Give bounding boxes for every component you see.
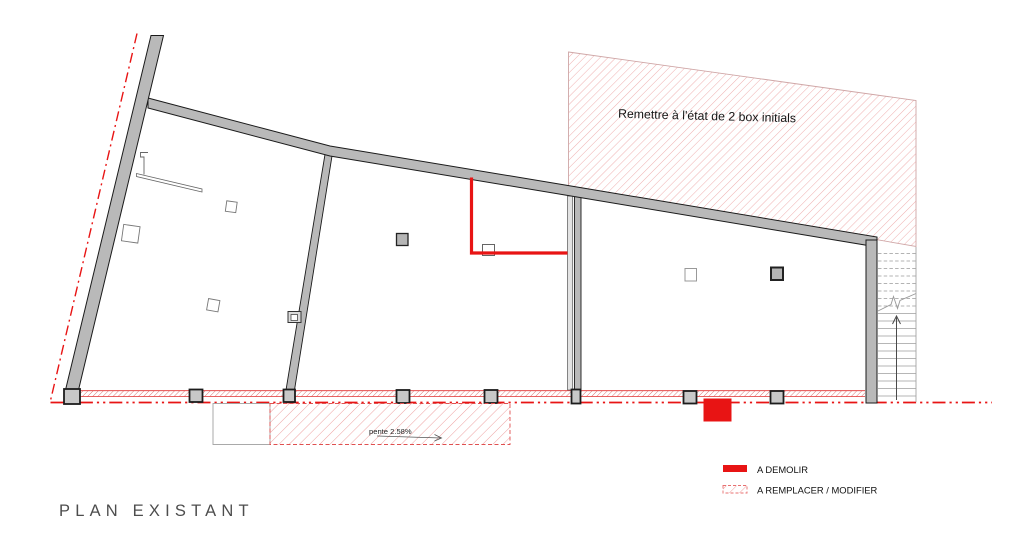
legend-label-demolir: A DEMOLIR — [757, 464, 808, 475]
staircase — [878, 247, 916, 402]
room1-details — [121, 153, 237, 312]
column — [485, 390, 498, 403]
legend-swatch-remplacer — [723, 486, 747, 494]
room2-details — [288, 234, 495, 323]
room3-details — [685, 268, 783, 282]
thin-wall-outline — [137, 174, 203, 193]
column — [284, 390, 296, 403]
room-fixture-square — [771, 268, 783, 281]
right-wall — [866, 240, 877, 403]
legend-item-demolir: A DEMOLIR — [723, 464, 808, 475]
boundary-diagonal-phantom-line — [51, 34, 138, 403]
partition-wall-2 — [575, 196, 582, 390]
legend-swatch-demolir — [723, 465, 747, 472]
floor-plan-canvas: pente 2.58% Remettre à l'état de 2 box i… — [0, 0, 1024, 541]
thin-wall-outline — [141, 153, 149, 175]
column — [572, 390, 581, 404]
column — [190, 390, 203, 403]
legend: A DEMOLIR A REMPLACER / MODIFIER — [723, 464, 878, 496]
room-fixture-square — [397, 234, 409, 246]
partition-wall-1 — [286, 150, 333, 391]
column — [397, 390, 410, 403]
floor-plan-svg: pente 2.58% Remettre à l'état de 2 box i… — [0, 0, 1024, 541]
ramp-landing — [213, 404, 270, 445]
legend-item-remplacer: A REMPLACER / MODIFIER — [723, 485, 878, 496]
room-fixture-square — [207, 299, 220, 312]
legend-label-remplacer: A REMPLACER / MODIFIER — [757, 485, 878, 496]
column — [684, 391, 697, 404]
stair-treads-dashed — [878, 254, 916, 307]
ramp-hatch — [270, 404, 510, 445]
element-to-demolish-square — [704, 399, 732, 422]
door-detail-inner — [291, 315, 298, 321]
stair-break-line — [878, 294, 916, 312]
room-fixture-square — [685, 269, 697, 282]
column — [771, 391, 784, 404]
ramp-slope-label: pente 2.58% — [369, 427, 412, 436]
room-fixture-square — [225, 201, 237, 213]
page-title: PLAN EXISTANT — [59, 502, 254, 520]
ramp: pente 2.58% — [213, 404, 510, 445]
column — [64, 389, 80, 404]
left-wall — [66, 36, 164, 391]
partition-wall-2-insulation — [568, 196, 573, 390]
room-fixture-square — [121, 224, 140, 243]
